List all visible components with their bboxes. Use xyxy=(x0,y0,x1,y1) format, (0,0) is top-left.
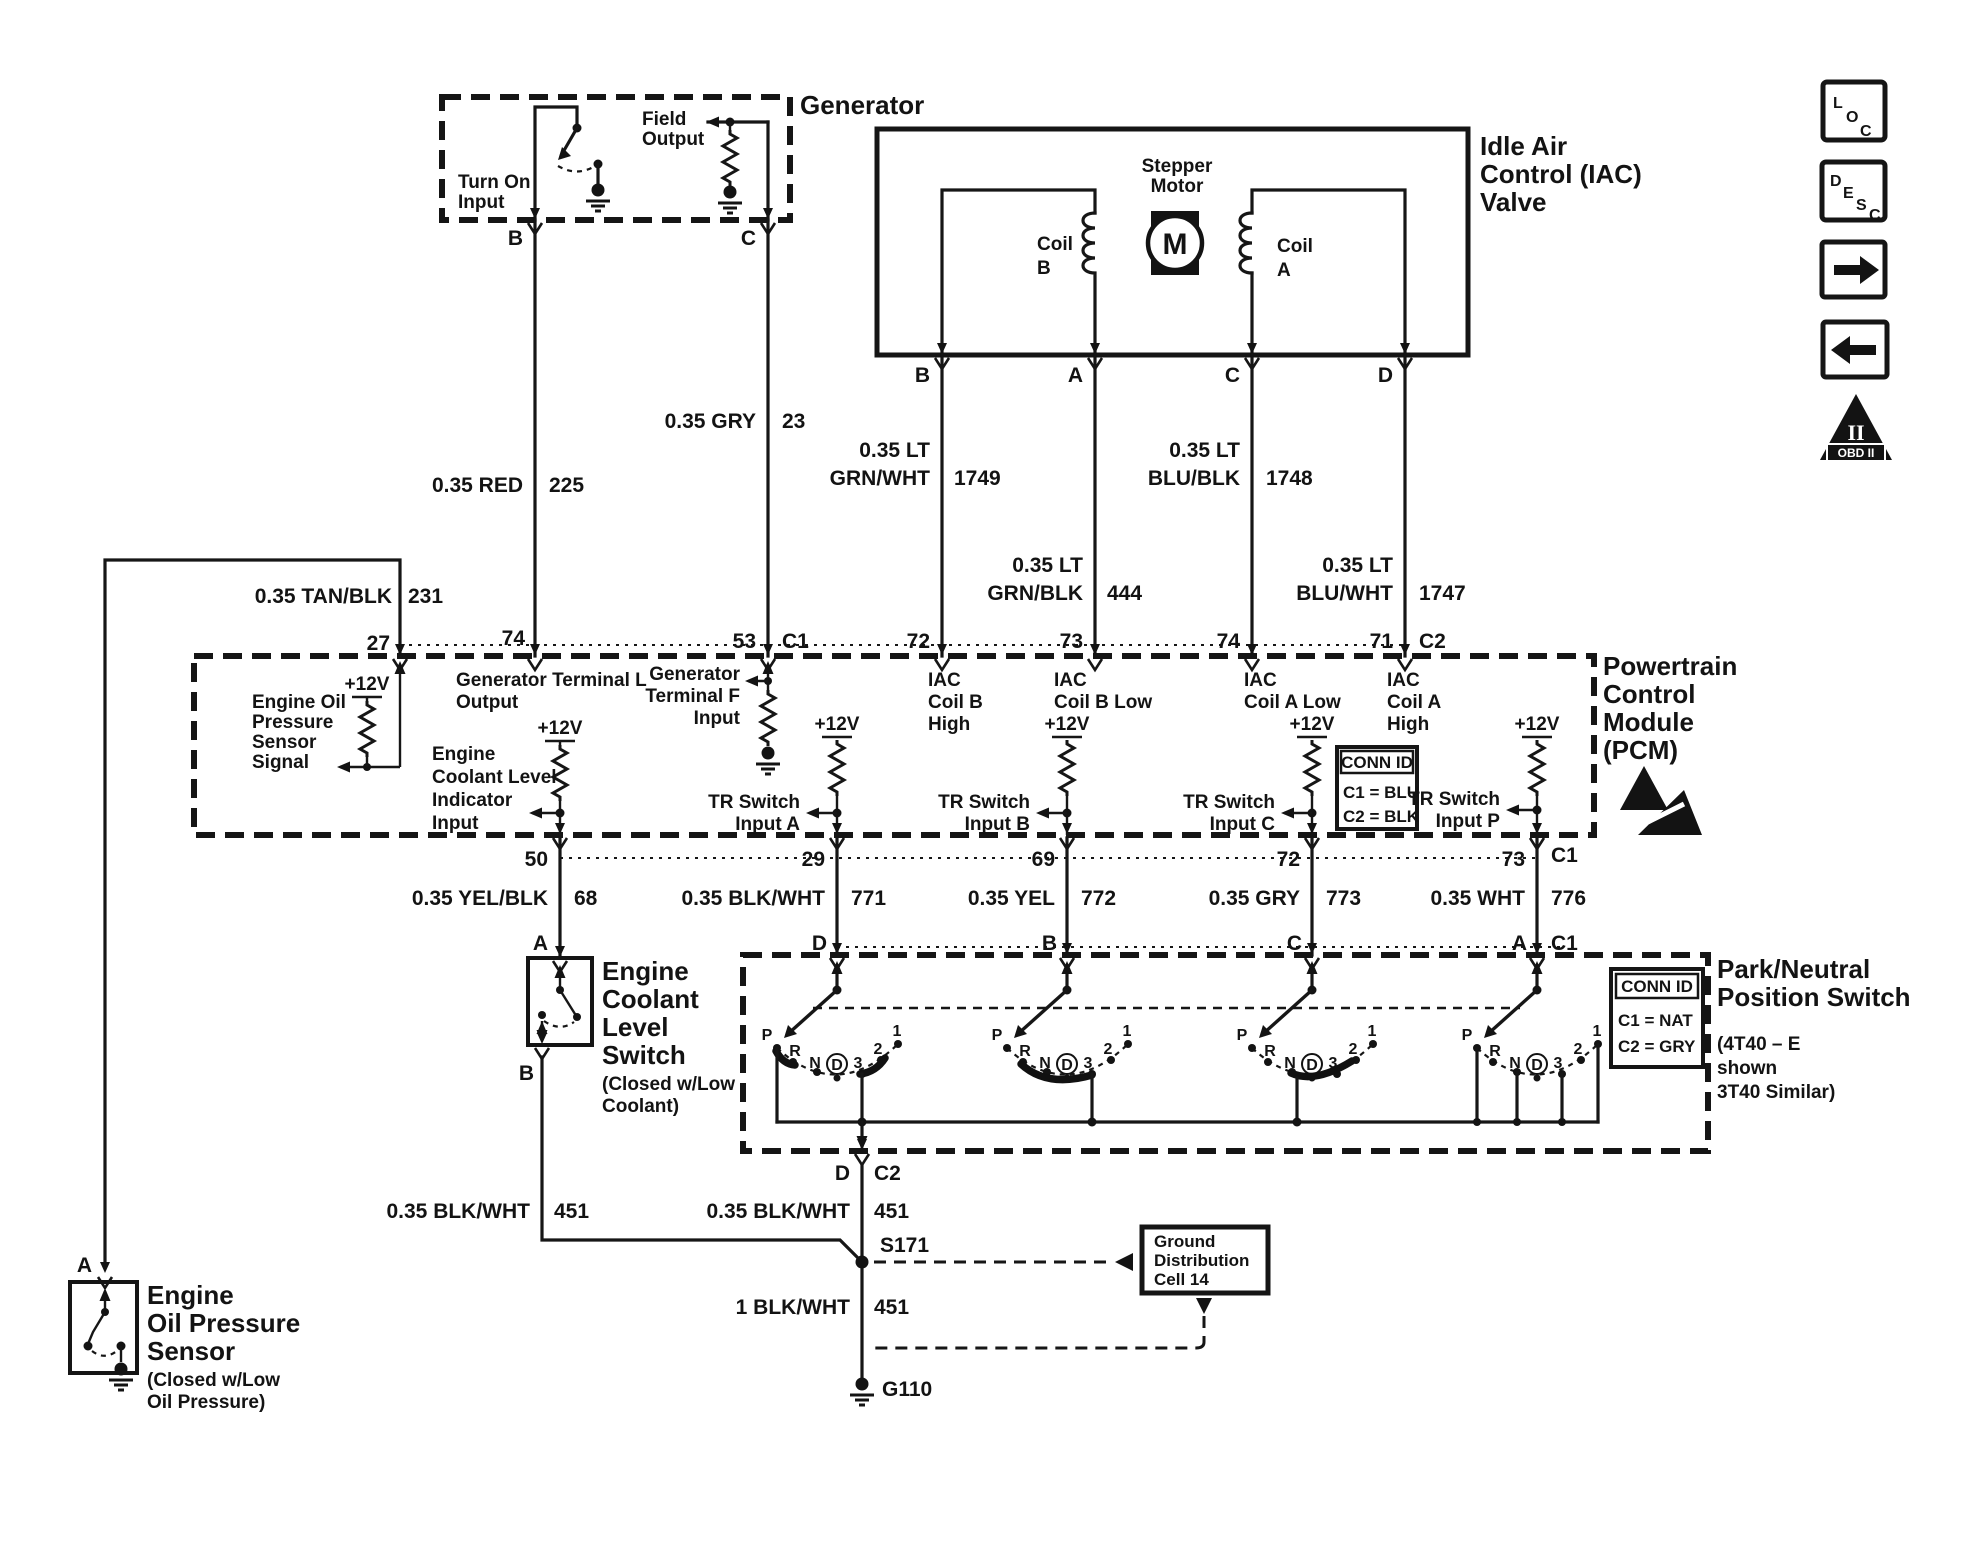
svg-text:2: 2 xyxy=(1104,1041,1113,1058)
svg-text:2: 2 xyxy=(1574,1041,1583,1058)
pcm-pin-71: 71 xyxy=(1370,630,1394,653)
iac-terminal-a: A xyxy=(1068,364,1083,387)
svg-text:+12V: +12V xyxy=(1515,714,1560,735)
ground-g110: G110 xyxy=(882,1378,932,1401)
svg-text:Input B: Input B xyxy=(965,814,1030,835)
pns-terminal-d: D xyxy=(812,932,827,955)
generator-terminal-c: C xyxy=(741,227,756,250)
splice-s171: S171 xyxy=(880,1234,929,1257)
pcm-oil-signal-label: Engine Oil xyxy=(252,692,346,713)
pcm-gtf-ground-icon xyxy=(756,747,780,775)
svg-text:Input P: Input P xyxy=(1436,811,1501,832)
pcm-12v-1: +12V xyxy=(345,674,390,695)
pcm-conn-id-box: CONN ID C1 = BLU C2 = BLK xyxy=(1337,747,1420,829)
pns-terminal-a: A xyxy=(1512,932,1527,955)
iac-coil-a-label2: A xyxy=(1277,260,1291,281)
pcm-iac-ah: IAC xyxy=(1387,670,1420,691)
svg-text:2: 2 xyxy=(874,1041,883,1058)
generator-field-ground-icon xyxy=(718,186,742,214)
coolant-name: Engine xyxy=(602,956,689,986)
wire-blublk-color: BLU/BLK xyxy=(1148,467,1240,490)
svg-text:P: P xyxy=(762,1027,773,1044)
ground-distribution-box: Ground Distribution Cell 14 xyxy=(1142,1227,1268,1293)
desc-button[interactable]: D E S C xyxy=(1822,162,1885,224)
svg-text:Input C: Input C xyxy=(1210,814,1276,835)
svg-text:R: R xyxy=(1489,1043,1501,1060)
svg-text:P: P xyxy=(992,1027,1003,1044)
pcm-iac-ah3: High xyxy=(1387,714,1429,735)
svg-text:C: C xyxy=(1869,207,1881,224)
oil-note: (Closed w/Low xyxy=(147,1370,280,1391)
pns-note2: shown xyxy=(1717,1058,1777,1079)
svg-text:C: C xyxy=(1860,123,1872,140)
pns-conn-id-box: CONN ID C1 = NAT C2 = GRY xyxy=(1611,969,1703,1067)
pcm-oil-signal-label2: Pressure xyxy=(252,712,333,733)
coolant-name2: Coolant xyxy=(602,984,699,1014)
svg-text:2: 2 xyxy=(1349,1041,1358,1058)
iac-coil-a-label: Coil xyxy=(1277,236,1313,257)
pcm-tr-input-p: +12V TR Switch Input P xyxy=(1408,714,1560,835)
obd-ii-label: OBD II xyxy=(1838,446,1875,460)
oil-note2: Oil Pressure) xyxy=(147,1392,265,1413)
wiring-diagram-page: Generator Turn On Input Field Output B C… xyxy=(0,0,1978,1568)
pcm-iac-ah2: Coil A xyxy=(1387,692,1441,713)
wire-blkwht451b-label: 0.35 BLK/WHT xyxy=(706,1200,850,1223)
svg-text:1: 1 xyxy=(1123,1023,1132,1040)
pns-note: (4T40 – E xyxy=(1717,1034,1800,1055)
coolant-level-switch: A B Engine Coolant Level Switch (Closed … xyxy=(519,932,735,1117)
wire-gry-label: 0.35 GRY xyxy=(665,410,756,433)
wiring-diagram-canvas: Generator Turn On Input Field Output B C… xyxy=(0,0,1978,1568)
iac-title2: Control (IAC) xyxy=(1480,159,1642,189)
wire-blublk-circuit: 1748 xyxy=(1266,467,1313,490)
pns-terminal-a-conn: C1 xyxy=(1551,932,1578,955)
pns-conn-id-title: CONN ID xyxy=(1621,977,1693,996)
wire-blkwht451a-circuit: 451 xyxy=(554,1200,589,1223)
pcm-ecl-label3: Indicator xyxy=(432,790,513,811)
svg-text:3: 3 xyxy=(1084,1055,1093,1072)
pns-conn-id-c1: C1 = NAT xyxy=(1618,1011,1693,1030)
pns-switch-2-labels: P R N D 3 2 1 xyxy=(992,1023,1132,1074)
pcm-tr-input-a: +12V TR Switch Input A xyxy=(708,714,860,835)
svg-text:Input A: Input A xyxy=(735,814,800,835)
pns-switch-4-labels: P R N D 3 2 1 xyxy=(1462,1023,1602,1074)
pcm-gtf-label: Generator xyxy=(649,664,740,685)
wire-yelblk-circuit: 68 xyxy=(574,887,598,910)
pcm-iac-al2: Coil A Low xyxy=(1244,692,1341,713)
iac-terminal-d: D xyxy=(1378,364,1393,387)
pns-terminal-b: B xyxy=(1042,932,1057,955)
iac-terminal-c: C xyxy=(1225,364,1240,387)
svg-text:D: D xyxy=(1306,1057,1318,1074)
wire-gry-circuit: 23 xyxy=(782,410,805,433)
oil-name: Engine xyxy=(147,1280,234,1310)
iac-motor-symbol: M xyxy=(1163,228,1188,261)
wire-grnwht-size: 0.35 LT xyxy=(859,439,930,462)
pns-title: Park/Neutral xyxy=(1717,954,1870,984)
svg-text:R: R xyxy=(789,1043,801,1060)
pns-switch-3-labels: P R N D 3 2 1 xyxy=(1237,1023,1377,1074)
pcm-ecl-label2: Coolant Level xyxy=(432,767,557,788)
wire-tan-blk-circuit: 231 xyxy=(408,585,443,608)
generator-switch-ground-icon xyxy=(586,184,610,212)
wire-bluwht-size: 0.35 LT xyxy=(1322,554,1393,577)
pcm-conn-id-title: CONN ID xyxy=(1341,753,1413,772)
generator-field-label2: Output xyxy=(642,129,705,150)
gd-label3: Cell 14 xyxy=(1154,1270,1209,1289)
pcm-box: Powertrain Control Module (PCM) 27 74 53… xyxy=(194,627,1737,871)
svg-text:TR Switch: TR Switch xyxy=(1183,792,1275,813)
iac-valve-box: Idle Air Control (IAC) Valve Stepper Mot… xyxy=(877,129,1642,387)
next-button[interactable] xyxy=(1822,242,1885,297)
oil-terminal-a-glyph xyxy=(98,1262,112,1288)
pns-title2: Position Switch xyxy=(1717,982,1911,1012)
pcm-ecl-label: Engine xyxy=(432,744,495,765)
svg-text:N: N xyxy=(1039,1055,1051,1072)
wire-grnblk-color: GRN/BLK xyxy=(987,582,1083,605)
wire-grnblk-size: 0.35 LT xyxy=(1012,554,1083,577)
svg-text:TR Switch: TR Switch xyxy=(938,792,1030,813)
svg-text:D: D xyxy=(1531,1057,1543,1074)
pns-output-c2: C2 xyxy=(874,1162,901,1185)
previous-button[interactable] xyxy=(1823,322,1887,377)
svg-text:E: E xyxy=(1843,185,1854,202)
pcm-pin-72: 72 xyxy=(907,630,930,653)
coolant-terminal-b: B xyxy=(519,1062,534,1085)
svg-text:N: N xyxy=(809,1055,821,1072)
pcm-tr-input-c: +12V TR Switch Input C xyxy=(1183,714,1335,835)
svg-text:O: O xyxy=(1846,109,1858,126)
wire-red-circuit: 225 xyxy=(549,474,584,497)
ground-run: 0.35 BLK/WHT 451 0.35 BLK/WHT 451 S171 1… xyxy=(386,1057,1268,1405)
iac-stepper-label: Stepper xyxy=(1142,156,1213,177)
wire-blkwht451c-label: 1 BLK/WHT xyxy=(736,1296,850,1319)
pcm-pin-50: 50 xyxy=(525,848,548,871)
wire-grnblk-circuit: 444 xyxy=(1107,582,1142,605)
pcm-title: Powertrain xyxy=(1603,651,1737,681)
wire-bluwht-color: BLU/WHT xyxy=(1296,582,1393,605)
wire-gry773-label: 0.35 GRY xyxy=(1209,887,1300,910)
wire-blkwht451a-label: 0.35 BLK/WHT xyxy=(386,1200,530,1223)
svg-text:D: D xyxy=(1061,1057,1073,1074)
pcm-title3: Module xyxy=(1603,707,1694,737)
wire-bluwht-circuit: 1747 xyxy=(1419,582,1466,605)
wire-gry773-circuit: 773 xyxy=(1326,887,1361,910)
svg-text:+12V: +12V xyxy=(1045,714,1090,735)
oil-terminal-a: A xyxy=(77,1254,92,1277)
pcm-pin-73b: 73 xyxy=(1502,848,1525,871)
iac-title3: Valve xyxy=(1480,187,1547,217)
svg-text:R: R xyxy=(1019,1043,1031,1060)
generator-turn-on-label: Turn On xyxy=(458,172,530,193)
pcm-pin-74b: 74 xyxy=(1217,630,1241,653)
from-cell-arrow-icon xyxy=(1196,1298,1212,1314)
pcm-pin-73: 73 xyxy=(1060,630,1083,653)
gd-label2: Distribution xyxy=(1154,1251,1249,1270)
generator-box: Generator Turn On Input Field Output B C xyxy=(442,90,924,250)
pcm-iac-bh: IAC xyxy=(928,670,961,691)
svg-text:L: L xyxy=(1833,95,1843,112)
pcm-gtf-label3: Input xyxy=(694,708,741,729)
svg-text:1: 1 xyxy=(1368,1023,1377,1040)
svg-text:+12V: +12V xyxy=(1290,714,1335,735)
svg-text:3: 3 xyxy=(854,1055,863,1072)
g110-ground-icon xyxy=(850,1378,874,1406)
pcm-title2: Control xyxy=(1603,679,1695,709)
svg-text:D: D xyxy=(1830,173,1842,190)
pcm-iac-bl: IAC xyxy=(1054,670,1087,691)
pcm-pin-29: 29 xyxy=(802,848,825,871)
pcm-iac-al: IAC xyxy=(1244,670,1277,691)
coolant-terminal-a: A xyxy=(533,932,548,955)
oil-name2: Oil Pressure xyxy=(147,1308,300,1338)
svg-text:R: R xyxy=(1264,1043,1276,1060)
pcm-pin-74a: 74 xyxy=(502,627,526,650)
pcm-12v-2: +12V xyxy=(538,718,583,739)
pcm-pin-72b: 72 xyxy=(1277,848,1300,871)
pns-conn-id-c2: C2 = GRY xyxy=(1618,1037,1696,1056)
iac-coil-b-label2: B xyxy=(1037,258,1051,279)
pcm-gtl-label: Generator Terminal L xyxy=(456,670,647,691)
oil-sensor-ground-icon xyxy=(109,1363,133,1391)
svg-text:P: P xyxy=(1462,1027,1473,1044)
pcm-iac-bh2: Coil B xyxy=(928,692,983,713)
svg-text:TR Switch: TR Switch xyxy=(708,792,800,813)
oil-pressure-sensor: A Engine Oil Pressure Sensor (Closed w/L… xyxy=(70,1254,300,1413)
pcm-pin-53-conn: C1 xyxy=(782,630,809,653)
iac-terminal-b: B xyxy=(915,364,930,387)
wire-yel772-circuit: 772 xyxy=(1081,887,1116,910)
pcm-oil-signal-label3: Sensor xyxy=(252,732,317,753)
generator-title: Generator xyxy=(800,90,924,120)
obd-ii-numeral: II xyxy=(1847,420,1864,445)
svg-text:S: S xyxy=(1856,197,1867,214)
wire-wht776-label: 0.35 WHT xyxy=(1430,887,1525,910)
esd-warning-icon xyxy=(1620,766,1702,835)
obd-ii-badge: II OBD II xyxy=(1820,394,1892,461)
pcm-ecl-label4: Input xyxy=(432,813,479,834)
pcm-oil-signal-label4: Signal xyxy=(252,752,309,773)
pcm-iac-bh3: High xyxy=(928,714,970,735)
pcm-iac-bl2: Coil B Low xyxy=(1054,692,1152,713)
svg-text:D: D xyxy=(831,1057,843,1074)
to-cell-arrow-icon xyxy=(1115,1253,1133,1271)
coolant-note: (Closed w/Low xyxy=(602,1074,735,1095)
wire-grnwht-color: GRN/WHT xyxy=(830,467,930,490)
pcm-pin-69: 69 xyxy=(1032,848,1055,871)
pcm-pin-73b-conn: C1 xyxy=(1551,844,1578,867)
generator-turn-on-label2: Input xyxy=(458,192,505,213)
pcm-pin-71-conn: C2 xyxy=(1419,630,1446,653)
gd-label: Ground xyxy=(1154,1232,1215,1251)
svg-text:P: P xyxy=(1237,1027,1248,1044)
generator-field-label: Field xyxy=(642,109,686,130)
arrow-left-icon xyxy=(1831,336,1876,364)
pcm-pin-53: 53 xyxy=(733,630,756,653)
wire-yel772-label: 0.35 YEL xyxy=(968,887,1055,910)
pns-note3: 3T40 Similar) xyxy=(1717,1082,1835,1103)
pns-box: Park/Neutral Position Switch (4T40 – E s… xyxy=(743,932,1911,1185)
wire-blkwht451b-circuit: 451 xyxy=(874,1200,909,1223)
coolant-note2: Coolant) xyxy=(602,1096,679,1117)
generator-terminal-b: B xyxy=(508,227,523,250)
harness-wires-middle: 0.35 YEL/BLK 68 0.35 BLK/WHT 771 0.35 YE… xyxy=(412,838,1586,958)
wire-blkwht771-circuit: 771 xyxy=(851,887,886,910)
pcm-gtl-label2: Output xyxy=(456,692,519,713)
wire-red-label: 0.35 RED xyxy=(432,474,523,497)
oil-name3: Sensor xyxy=(147,1336,235,1366)
svg-text:+12V: +12V xyxy=(815,714,860,735)
iac-title: Idle Air xyxy=(1480,131,1567,161)
wire-grnwht-circuit: 1749 xyxy=(954,467,1001,490)
wire-tan-blk-label: 0.35 TAN/BLK xyxy=(255,585,392,608)
loc-button[interactable]: L O C xyxy=(1823,82,1885,140)
svg-text:N: N xyxy=(1509,1055,1521,1072)
wire-blkwht451c-circuit: 451 xyxy=(874,1296,909,1319)
svg-text:1: 1 xyxy=(1593,1023,1602,1040)
svg-text:TR Switch: TR Switch xyxy=(1408,789,1500,810)
svg-text:1: 1 xyxy=(893,1023,902,1040)
pcm-pin-27: 27 xyxy=(367,632,390,655)
coolant-name3: Level xyxy=(602,1012,669,1042)
pcm-conn-id-c1: C1 = BLU xyxy=(1343,783,1419,802)
coolant-name4: Switch xyxy=(602,1040,686,1070)
wire-blublk-size: 0.35 LT xyxy=(1169,439,1240,462)
wire-blkwht771-label: 0.35 BLK/WHT xyxy=(681,887,825,910)
wire-yelblk-label: 0.35 YEL/BLK xyxy=(412,887,548,910)
svg-text:3: 3 xyxy=(1554,1055,1563,1072)
pcm-title4: (PCM) xyxy=(1603,735,1678,765)
viewer-nav-icons: L O C D E S C II OBD II xyxy=(1820,82,1892,461)
pcm-gtf-label2: Terminal F xyxy=(645,686,740,707)
iac-coil-b-label: Coil xyxy=(1037,234,1073,255)
arrow-right-icon xyxy=(1834,256,1879,284)
pcm-conn-id-c2: C2 = BLK xyxy=(1343,807,1420,826)
iac-stepper-label2: Motor xyxy=(1151,176,1204,197)
pns-output-d: D xyxy=(835,1162,850,1185)
pns-terminal-c: C xyxy=(1287,932,1302,955)
wire-wht776-circuit: 776 xyxy=(1551,887,1586,910)
